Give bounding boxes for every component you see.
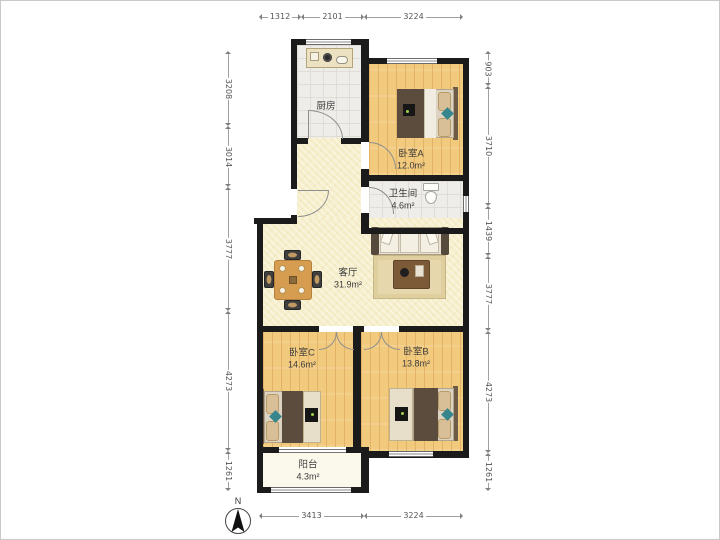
wall [361,39,369,142]
toilet-icon [423,183,439,191]
dim-bottom-1: 3413 [259,510,364,522]
room-name: 卧室A [397,148,425,160]
balcony-slider-door [279,449,346,453]
room-name: 卧室B [402,346,430,358]
bathroom-label: 卫生间 4.6m² [389,188,418,211]
wall [399,326,469,332]
kitchen-label: 厨房 [316,101,335,113]
dining-chair [284,300,301,310]
bedroom-a-window [387,58,437,64]
wall [263,447,279,453]
dim-bottom-2: 3224 [364,510,463,522]
compass-north-letter: N [235,496,242,506]
wall [257,326,319,332]
dim-right-3: 1439 [482,206,494,256]
dim-right-5: 4273 [482,331,494,453]
room-area: 14.6m² [288,359,316,370]
dim-value: 1261 [222,460,234,482]
kettle-icon [400,268,409,277]
indicator-dot [401,412,404,415]
dim-value: 3224 [401,12,425,22]
indicator-dot [406,110,409,113]
bathroom-window [463,196,469,212]
bedroom-c-label: 卧室C 14.6m² [288,347,316,370]
wall [353,326,361,453]
dim-value: 3224 [401,511,425,521]
wall [463,212,469,458]
room-area: 12.0m² [397,160,425,171]
room-area: 4.3m² [296,471,319,482]
bedroom-b-label: 卧室B 13.8m² [402,346,430,369]
dim-value: 1261 [482,461,494,483]
cutting-board-icon [310,52,319,61]
coffee-table [393,260,430,289]
dim-value: 1312 [268,12,292,22]
dim-value: 3777 [222,238,234,260]
plate-icon [298,265,305,272]
dining-chair [312,271,322,288]
wall [341,138,361,144]
dim-left-2: 3014 [222,126,234,187]
room-area: 4.6m² [389,200,418,211]
wall [361,228,469,234]
wall [346,447,361,453]
plate-icon [279,287,286,294]
pillow-icon [438,419,451,439]
balcony-label: 阳台 4.3m² [296,459,319,482]
bedroom-b-window [389,451,433,457]
dim-value: 1439 [482,220,494,242]
compass-icon: N [221,495,255,539]
dim-left-4: 4273 [222,311,234,451]
bed-c-blanket [282,391,303,443]
dim-top-3: 3224 [364,11,463,23]
dim-top-1: 1312 [259,11,301,23]
wall [361,175,469,181]
room-area: 13.8m² [402,358,430,369]
sink-icon [336,56,348,64]
wall [291,138,308,144]
dim-right-2: 3710 [482,86,494,206]
dim-value: 3413 [299,511,323,521]
dim-right-4: 3777 [482,256,494,331]
tray-icon [415,265,424,277]
pillow-icon [266,421,279,441]
wall [463,58,469,196]
hallway-floor [297,138,361,230]
pillow-icon [438,391,451,411]
dim-right-6: 1261 [482,453,494,491]
dim-top-2: 2101 [301,11,364,23]
dim-left-5: 1261 [222,451,234,491]
tv-icon [403,104,415,116]
dim-value: 3777 [482,282,494,304]
dim-value: 903 [482,60,494,77]
wall [291,39,297,189]
stove-icon [323,53,332,62]
bedroom-a-label: 卧室A 12.0m² [397,148,425,171]
plate-icon [279,265,286,272]
balcony-window [271,487,351,493]
room-name: 卫生间 [389,188,418,200]
pillow-icon [438,118,451,137]
living-room-label: 客厅 31.9m² [334,267,362,290]
dim-value: 3710 [482,135,494,157]
indicator-dot [311,413,314,416]
plate-icon [298,287,305,294]
dim-value: 4273 [222,370,234,392]
centerpiece-icon [289,276,297,284]
dim-value: 3014 [222,145,234,167]
dining-chair [264,271,274,288]
dim-value: 3208 [222,77,234,99]
room-area: 31.9m² [334,279,362,290]
room-name: 厨房 [316,101,335,113]
dim-right-1: 903 [482,51,494,86]
dim-value: 2101 [320,12,344,22]
room-name: 客厅 [334,267,362,279]
floor-plan: 厨房 卧室A 12.0m² 卫生间 4.6m² 客厅 31.9m² 卧室C 14… [0,0,720,540]
dining-chair [284,250,301,260]
room-name: 阳台 [296,459,319,471]
bed-a-sheet-fold [424,89,436,138]
room-name: 卧室C [288,347,316,359]
dim-left-3: 3777 [222,187,234,311]
kitchen-window [306,39,351,45]
dim-value: 4273 [482,381,494,403]
dim-left-1: 3208 [222,51,234,126]
compass: N [221,495,255,539]
bed-b-blanket [414,388,438,441]
